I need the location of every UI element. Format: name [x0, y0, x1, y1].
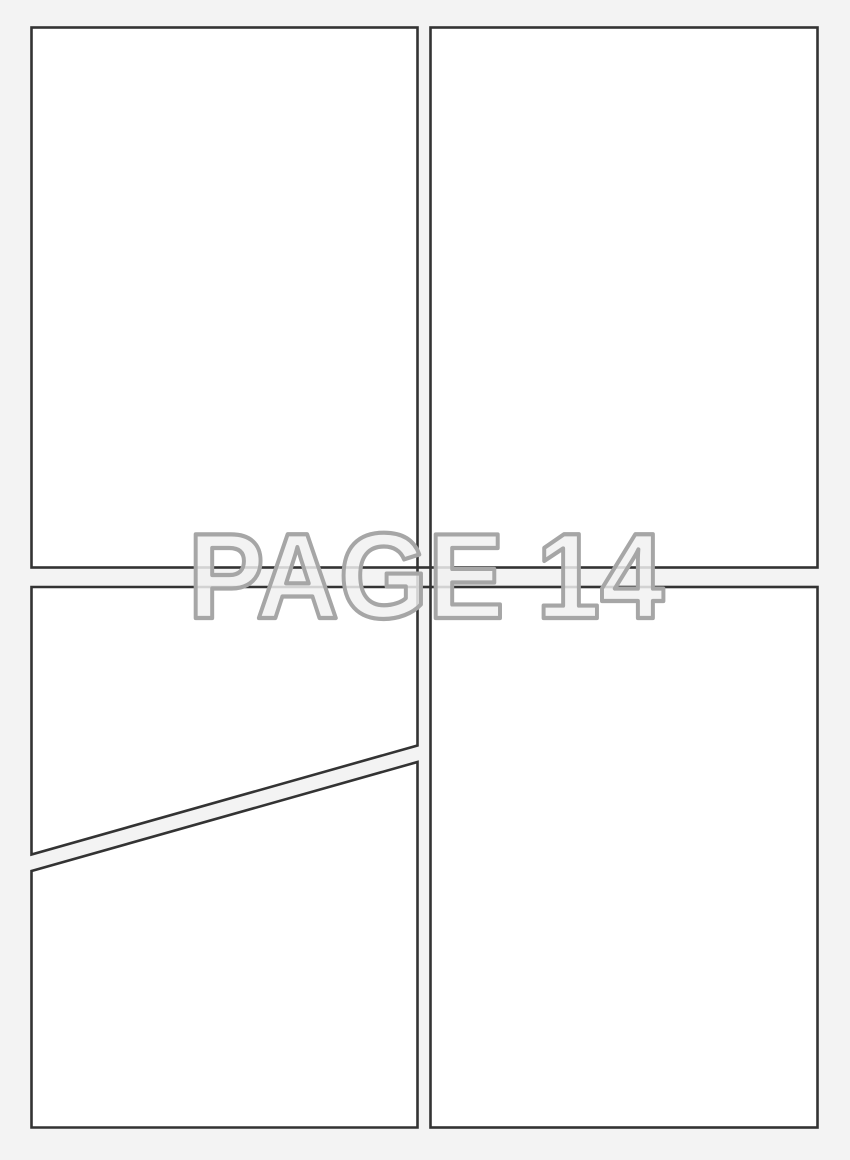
page-number-watermark: PAGE 14 [188, 508, 664, 644]
panel-top-left [32, 28, 418, 568]
comic-page-canvas: PAGE 14 [0, 0, 850, 1160]
comic-page-template: PAGE 14 [0, 0, 850, 1160]
panel-bottom-right [431, 587, 818, 1128]
panel-top-right [431, 28, 818, 568]
